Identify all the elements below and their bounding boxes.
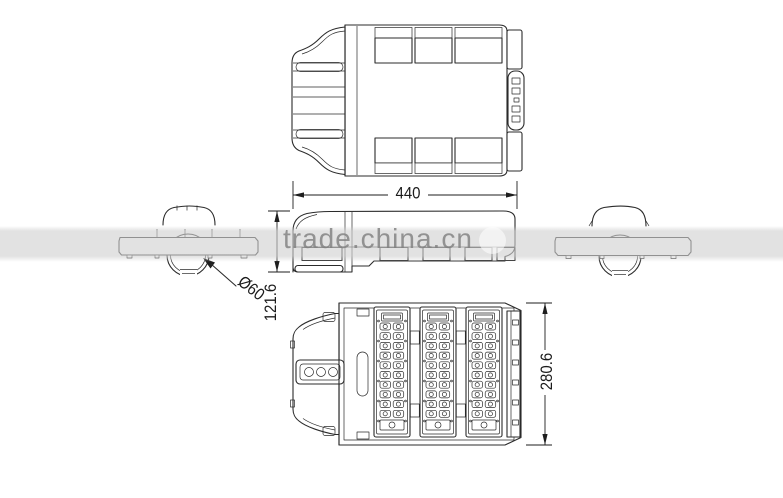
- led-module-2: [420, 307, 456, 437]
- arm-screw-plate: [296, 360, 344, 384]
- end-cap-bracket: [507, 30, 524, 171]
- mount-foot: [295, 266, 343, 273]
- technical-drawing-canvas: trade.china.cn 440 Ø60 121.6 280.6: [0, 0, 783, 498]
- watermark-text: trade.china.cn: [283, 223, 473, 255]
- bottom-view: [291, 303, 522, 445]
- top-view: [292, 25, 524, 176]
- led-modules: [374, 307, 502, 437]
- right-cap-strip: [507, 311, 520, 437]
- dimension-length-value: 440: [386, 184, 430, 203]
- led-module-3: [466, 307, 502, 437]
- dimension-side-height-value: 121.6: [261, 275, 280, 331]
- led-module-1: [374, 307, 410, 437]
- dimension-body-width-value: 280.6: [537, 343, 556, 401]
- watermark-globe-icon: [479, 227, 506, 254]
- end-dome-right: [592, 206, 646, 226]
- end-dome: [163, 206, 215, 225]
- watermark-band: trade.china.cn: [0, 226, 783, 262]
